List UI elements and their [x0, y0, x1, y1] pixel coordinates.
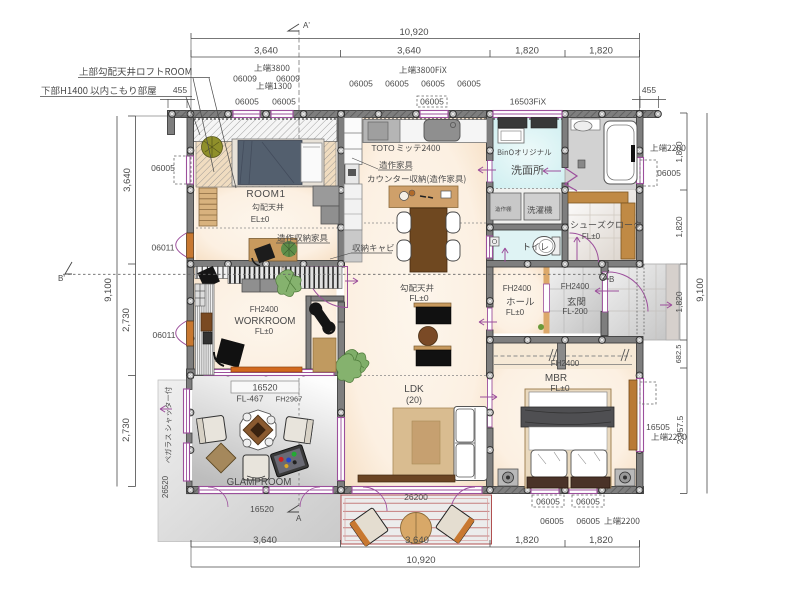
svg-text:FH2400: FH2400 — [551, 359, 580, 368]
svg-text:B: B — [609, 275, 614, 284]
svg-text:1,820: 1,820 — [515, 46, 539, 57]
svg-text:10,920: 10,920 — [399, 27, 428, 38]
svg-text:FL-467: FL-467 — [237, 394, 264, 404]
svg-text:9,100: 9,100 — [103, 278, 114, 302]
svg-text:10,920: 10,920 — [406, 555, 435, 566]
svg-text:3,640: 3,640 — [122, 168, 133, 192]
svg-text:3,640: 3,640 — [397, 46, 421, 57]
svg-text:16520: 16520 — [250, 504, 274, 514]
svg-text:FL±0: FL±0 — [582, 232, 601, 241]
svg-text:06005: 06005 — [235, 97, 259, 107]
svg-text:FH2967: FH2967 — [276, 395, 303, 404]
svg-text:1,820: 1,820 — [674, 216, 684, 238]
svg-text:GLAMPROOM: GLAMPROOM — [227, 477, 292, 488]
svg-text:FH2400: FH2400 — [250, 305, 279, 314]
svg-text:LDK: LDK — [404, 384, 424, 395]
svg-text:06005: 06005 — [540, 516, 564, 526]
svg-text:06005: 06005 — [576, 497, 600, 507]
svg-text:455: 455 — [642, 85, 656, 95]
svg-text:16503FiX: 16503FiX — [510, 97, 547, 107]
svg-text:A': A' — [303, 21, 310, 30]
svg-text:1,820: 1,820 — [589, 535, 613, 546]
svg-text:1,820: 1,820 — [674, 291, 684, 313]
svg-text:FL-200: FL-200 — [562, 307, 588, 316]
svg-text:TOTO: TOTO — [371, 143, 395, 153]
svg-text:06009: 06009 — [233, 74, 257, 84]
svg-text:06005: 06005 — [657, 168, 681, 178]
svg-text:455: 455 — [173, 85, 187, 95]
svg-text:2,730: 2,730 — [121, 308, 132, 332]
svg-text:682.5: 682.5 — [674, 345, 683, 364]
svg-text:06009: 06009 — [276, 74, 300, 84]
svg-text:FL±0: FL±0 — [550, 383, 570, 393]
svg-text:06005: 06005 — [151, 163, 175, 173]
svg-text:06005: 06005 — [576, 516, 600, 526]
svg-text:(20): (20) — [406, 395, 422, 405]
svg-text:B': B' — [58, 274, 65, 283]
svg-text:1,820: 1,820 — [589, 46, 613, 57]
svg-text:06005: 06005 — [349, 79, 373, 89]
svg-text:06005: 06005 — [536, 497, 560, 507]
svg-text:A: A — [296, 514, 302, 523]
svg-text:FH2400: FH2400 — [503, 284, 532, 293]
svg-text:06005: 06005 — [421, 79, 445, 89]
svg-text:3,640: 3,640 — [253, 535, 277, 546]
svg-text:3,640: 3,640 — [405, 535, 429, 546]
svg-text:06005: 06005 — [272, 97, 296, 107]
svg-text:2,730: 2,730 — [121, 418, 132, 442]
svg-text:16520: 16520 — [252, 383, 277, 393]
svg-text:06005: 06005 — [457, 79, 481, 89]
svg-text:1,820: 1,820 — [674, 141, 684, 163]
svg-text:06005: 06005 — [385, 79, 409, 89]
svg-text:EL±0: EL±0 — [251, 215, 270, 224]
svg-text:26520: 26520 — [161, 475, 170, 498]
svg-text:06005: 06005 — [420, 97, 444, 107]
svg-text:26200: 26200 — [404, 492, 428, 502]
svg-text:FL±0: FL±0 — [409, 293, 429, 303]
svg-text:FL±0: FL±0 — [506, 308, 525, 317]
svg-text:3,640: 3,640 — [254, 46, 278, 57]
svg-text:1,820: 1,820 — [515, 535, 539, 546]
svg-text:FL±0: FL±0 — [255, 327, 274, 336]
svg-text:WORKROOM: WORKROOM — [235, 316, 296, 327]
svg-text:06011: 06011 — [151, 243, 174, 253]
svg-text:9,100: 9,100 — [695, 278, 706, 302]
svg-text:ROOM1: ROOM1 — [246, 189, 285, 200]
svg-text:06011: 06011 — [152, 330, 175, 340]
svg-text:FH2400: FH2400 — [561, 282, 590, 291]
svg-text:16505: 16505 — [646, 422, 670, 432]
